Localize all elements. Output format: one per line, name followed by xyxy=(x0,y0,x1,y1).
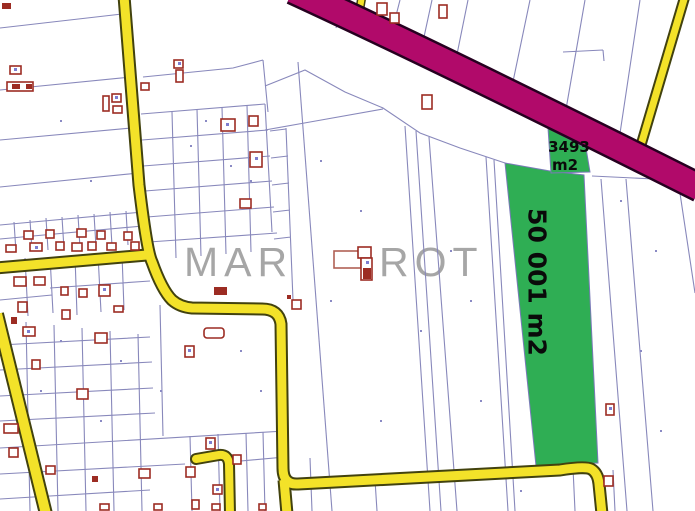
cadastral-map[interactable]: MAR ROT xyxy=(0,0,695,511)
parcel-area-label-secondary-value: 3493 xyxy=(548,138,590,156)
parcel-area-label-secondary-unit: m2 xyxy=(552,156,578,174)
watermark-word-right: ROT xyxy=(379,239,484,285)
parcel-area-label-main: 50 001 m2 xyxy=(523,208,552,356)
